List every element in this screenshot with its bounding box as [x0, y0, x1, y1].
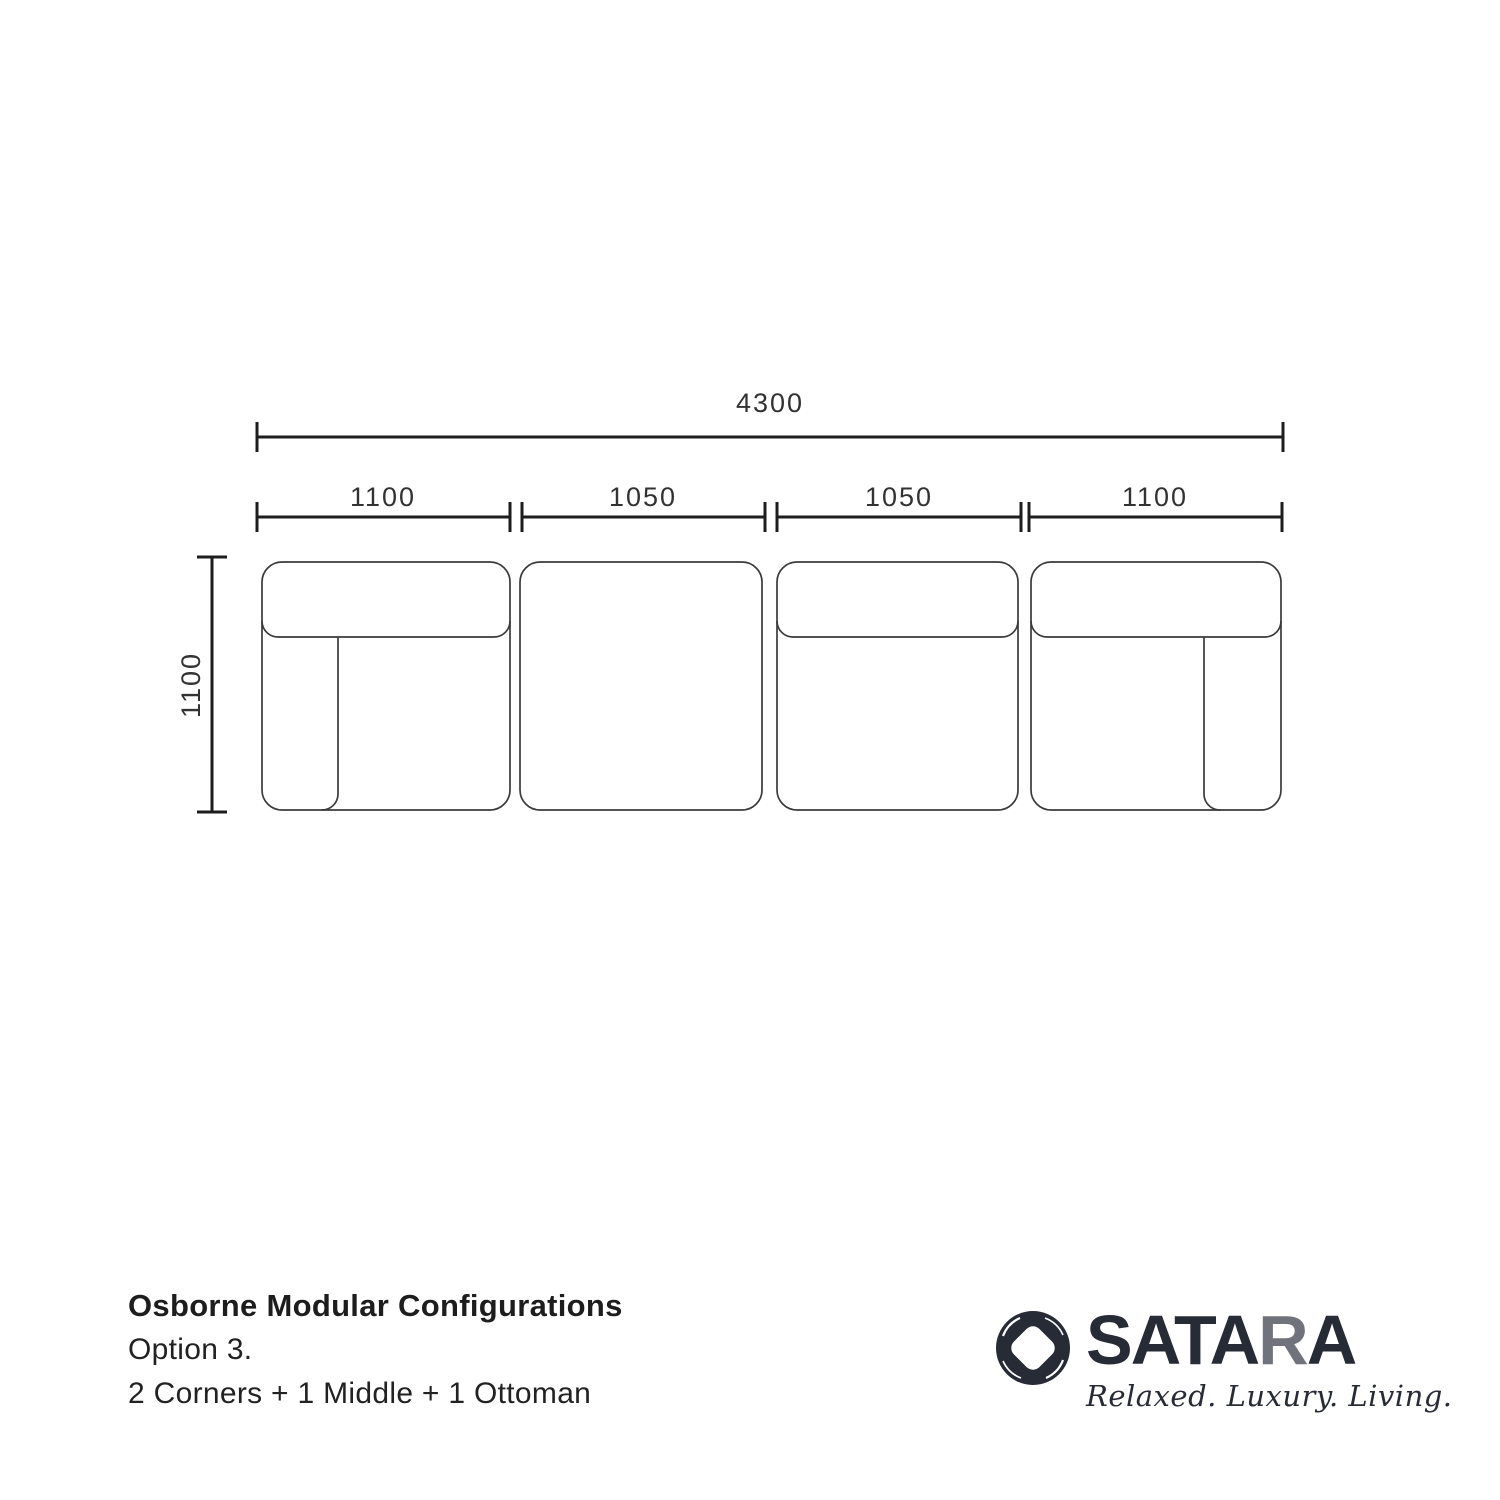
brand-name-suffix: A [1307, 1301, 1356, 1379]
brand-name-gray-letter: R [1258, 1301, 1307, 1379]
segment-label-ottoman: 1050 [609, 482, 677, 512]
total-dimension-label: 4300 [736, 388, 804, 418]
backrest-line [1031, 621, 1281, 637]
total-dimension-line [257, 422, 1283, 452]
backrest-line [777, 621, 1018, 637]
page: 4300 1100 1050 1050 1100 [0, 0, 1500, 1500]
brand-name: SATARA [1086, 1305, 1453, 1375]
modular-configuration-diagram: 4300 1100 1050 1050 1100 [0, 0, 1500, 980]
segment-label-middle: 1050 [865, 482, 933, 512]
brand-logo: SATARA Relaxed. Luxury. Living. [994, 1305, 1453, 1413]
backrest-line [262, 621, 510, 637]
armrest-line [1204, 637, 1220, 810]
option-label: Option 3. [128, 1328, 623, 1372]
configuration-label: 2 Corners + 1 Middle + 1 Ottoman [128, 1372, 623, 1416]
segment-label-corner-right: 1100 [1122, 482, 1188, 512]
brand-tagline: Relaxed. Luxury. Living. [1086, 1379, 1453, 1413]
module-corner-right-outline [1031, 562, 1281, 810]
diagram-title: Osborne Modular Configurations [128, 1284, 623, 1328]
satara-logo-icon [994, 1309, 1072, 1387]
brand-name-prefix: SATA [1086, 1301, 1258, 1379]
module-corner-left-outline [262, 562, 510, 810]
depth-dimension-label: 1100 [176, 652, 206, 718]
brand-text: SATARA Relaxed. Luxury. Living. [1086, 1305, 1453, 1413]
module-ottoman-outline [520, 562, 762, 810]
caption-block: Osborne Modular Configurations Option 3.… [128, 1284, 623, 1416]
armrest-line [322, 637, 338, 810]
module-middle-outline [777, 562, 1018, 810]
segment-label-corner-left: 1100 [350, 482, 416, 512]
